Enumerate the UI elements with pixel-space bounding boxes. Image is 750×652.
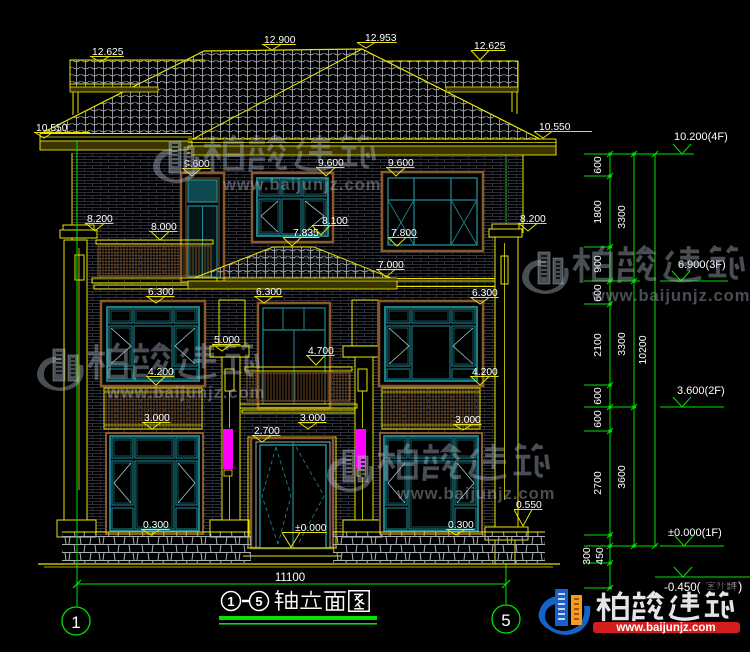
svg-text:10200: 10200 [637, 335, 649, 364]
svg-text:-0.450(: -0.450( [664, 582, 701, 594]
svg-text:1: 1 [71, 613, 80, 632]
svg-text:www.baijunjz.com: www.baijunjz.com [615, 622, 715, 634]
svg-text:3600: 3600 [616, 465, 628, 489]
svg-text:450: 450 [594, 547, 606, 565]
svg-text:2100: 2100 [592, 333, 604, 357]
svg-text:600: 600 [592, 156, 604, 174]
svg-text:): ) [738, 579, 742, 594]
svg-text:5: 5 [501, 611, 510, 630]
svg-text:300: 300 [581, 547, 593, 565]
svg-text:3300: 3300 [616, 332, 628, 356]
svg-text:10.200(4F): 10.200(4F) [674, 131, 728, 143]
svg-text:3300: 3300 [616, 205, 628, 229]
svg-text:1800: 1800 [592, 200, 604, 224]
svg-text:11100: 11100 [275, 572, 305, 584]
svg-text:600: 600 [592, 387, 604, 405]
svg-text:600: 600 [592, 410, 604, 428]
svg-text:5: 5 [255, 594, 262, 609]
svg-text:2700: 2700 [592, 471, 604, 495]
svg-text:3.600(2F): 3.600(2F) [677, 385, 725, 397]
svg-text:1: 1 [227, 594, 234, 609]
